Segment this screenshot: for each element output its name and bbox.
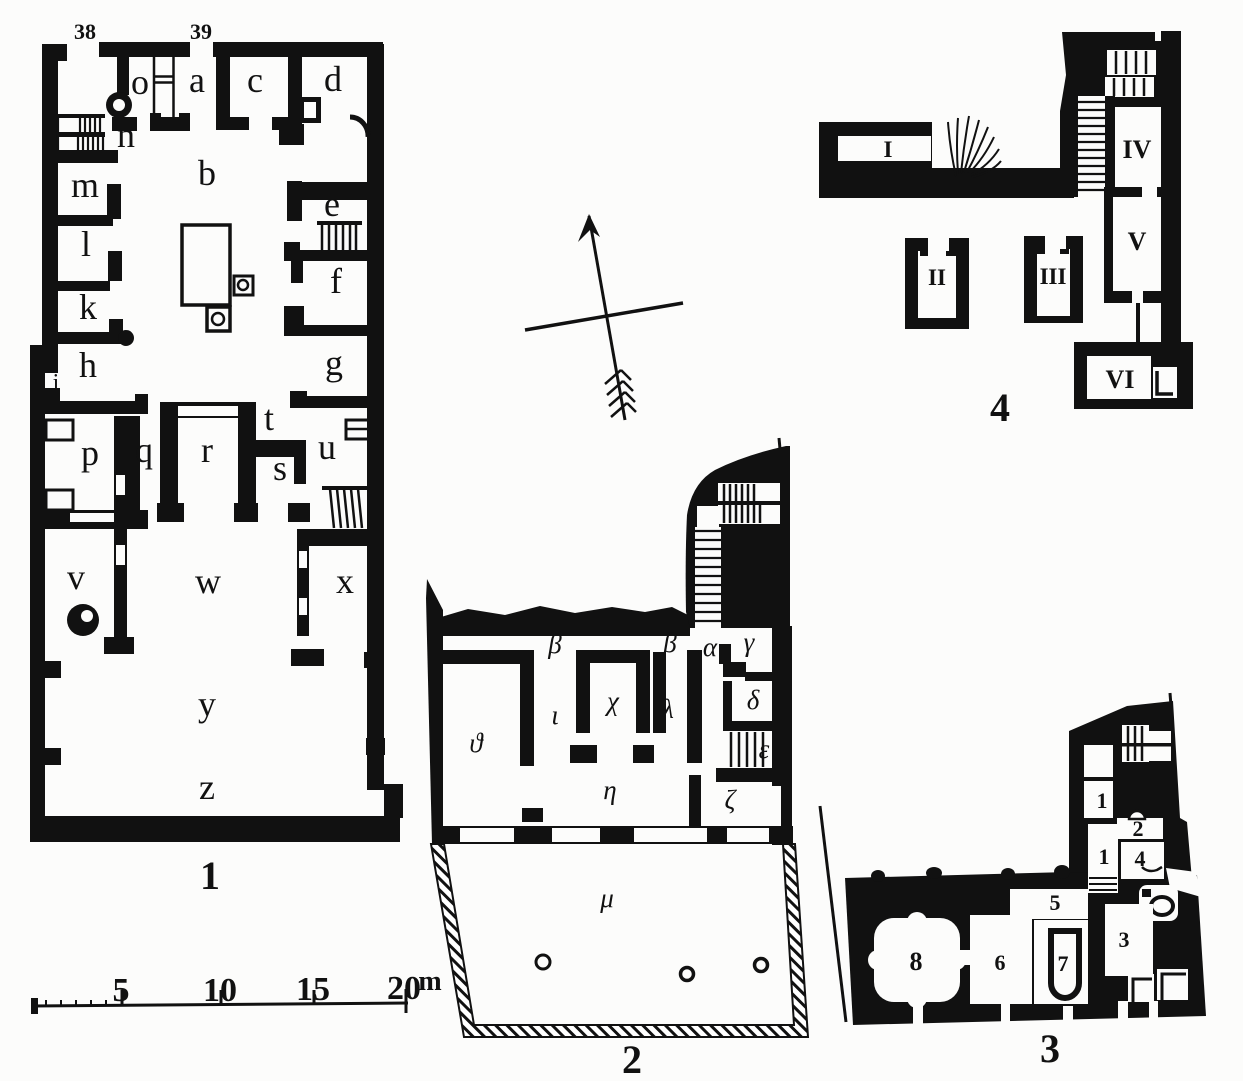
svg-text:λ: λ: [661, 694, 674, 724]
svg-text:η: η: [603, 775, 616, 805]
svg-text:m: m: [418, 966, 441, 997]
svg-text:I: I: [884, 137, 893, 162]
svg-text:γ: γ: [744, 627, 756, 657]
svg-text:δ: δ: [747, 685, 760, 715]
svg-text:15: 15: [296, 971, 330, 1008]
svg-text:g: g: [325, 343, 343, 383]
svg-text:ε: ε: [759, 734, 770, 764]
svg-text:p: p: [81, 433, 99, 473]
svg-text:2: 2: [1133, 816, 1144, 841]
svg-text:w: w: [195, 561, 221, 601]
svg-text:1: 1: [200, 853, 220, 898]
svg-text:i: i: [53, 370, 60, 396]
svg-text:l: l: [81, 224, 91, 264]
svg-text:2: 2: [622, 1037, 642, 1081]
svg-text:8: 8: [910, 947, 923, 976]
svg-text:h: h: [79, 345, 97, 385]
svg-text:β: β: [547, 629, 562, 659]
svg-text:q: q: [135, 430, 153, 470]
svg-text:m: m: [71, 165, 99, 205]
svg-text:38: 38: [74, 19, 96, 44]
svg-text:7: 7: [1058, 951, 1069, 976]
svg-text:e: e: [324, 184, 340, 224]
svg-text:t: t: [264, 398, 274, 438]
svg-text:39: 39: [190, 19, 212, 44]
svg-text:a: a: [189, 60, 205, 100]
svg-text:1: 1: [1097, 788, 1108, 813]
svg-text:IV: IV: [1123, 135, 1152, 164]
svg-text:4: 4: [1135, 846, 1146, 871]
svg-text:d: d: [324, 59, 342, 99]
svg-text:10: 10: [203, 972, 237, 1009]
svg-text:r: r: [201, 430, 213, 470]
svg-text:c: c: [247, 60, 263, 100]
svg-text:III: III: [1040, 264, 1067, 289]
svg-text:II: II: [928, 265, 946, 290]
svg-text:V: V: [1128, 227, 1147, 256]
svg-text:k: k: [79, 287, 97, 327]
svg-text:u: u: [318, 427, 336, 467]
svg-text:n: n: [117, 115, 135, 155]
svg-text:20: 20: [387, 970, 421, 1007]
svg-text:ι: ι: [551, 700, 559, 730]
svg-text:6: 6: [995, 950, 1006, 975]
svg-text:b: b: [198, 153, 216, 193]
svg-text:VI: VI: [1106, 365, 1135, 394]
svg-text:4: 4: [990, 385, 1010, 430]
svg-text:α: α: [703, 632, 718, 662]
svg-text:1: 1: [1099, 844, 1110, 869]
svg-text:x: x: [336, 561, 354, 601]
svg-text:v: v: [67, 557, 85, 597]
svg-text:5: 5: [1050, 890, 1061, 915]
svg-text:3: 3: [1040, 1026, 1060, 1071]
svg-text:χ: χ: [604, 686, 620, 716]
svg-text:5: 5: [113, 972, 130, 1009]
svg-text:z: z: [199, 767, 215, 807]
svg-text:o: o: [131, 62, 149, 102]
svg-text:β: β: [662, 628, 677, 658]
svg-text:s: s: [273, 448, 287, 488]
svg-text:f: f: [330, 261, 342, 301]
svg-text:ϑ: ϑ: [469, 728, 484, 758]
svg-text:μ: μ: [599, 883, 614, 913]
svg-text:3: 3: [1119, 927, 1130, 952]
svg-text:y: y: [198, 684, 216, 724]
